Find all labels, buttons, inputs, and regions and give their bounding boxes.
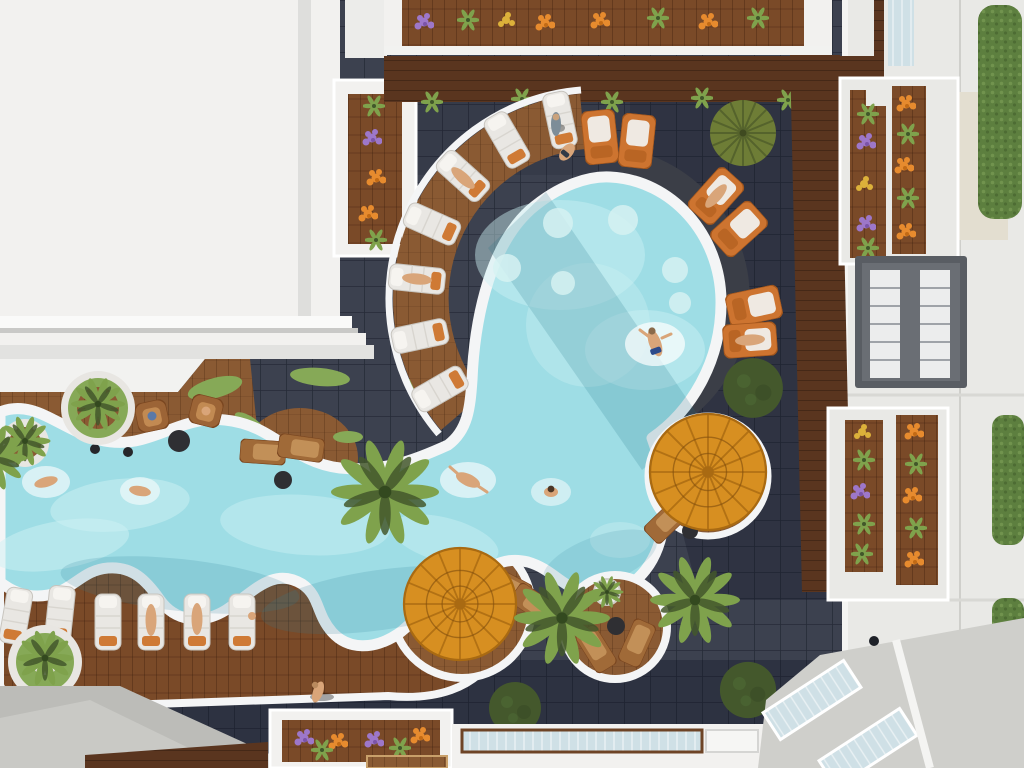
fan-palm — [710, 100, 776, 166]
stool — [90, 444, 100, 454]
resort-courtyard-scene — [0, 0, 1024, 768]
orange-lounger — [617, 112, 656, 169]
window-right — [855, 256, 967, 388]
parasol-southwest — [404, 548, 516, 660]
spiral-planter — [61, 371, 135, 445]
orange-lounger — [580, 108, 619, 165]
balcony-planter-lower-right — [828, 408, 948, 600]
balcony-planter-upper-right — [840, 78, 958, 264]
screenshot-canvas — [0, 0, 1024, 768]
round-table — [168, 430, 190, 452]
white-lounger — [95, 594, 121, 650]
ottoman — [274, 471, 292, 489]
balcony-planter-top — [384, 0, 832, 55]
aerial-resort-rendering — [0, 0, 1024, 768]
bush — [723, 358, 783, 418]
stool — [123, 447, 133, 457]
swimmer-main-pool — [625, 322, 685, 366]
platform-table — [607, 617, 625, 635]
parasol-east — [650, 414, 766, 530]
rooftop-left — [0, 0, 387, 392]
white-lounger — [229, 594, 255, 650]
